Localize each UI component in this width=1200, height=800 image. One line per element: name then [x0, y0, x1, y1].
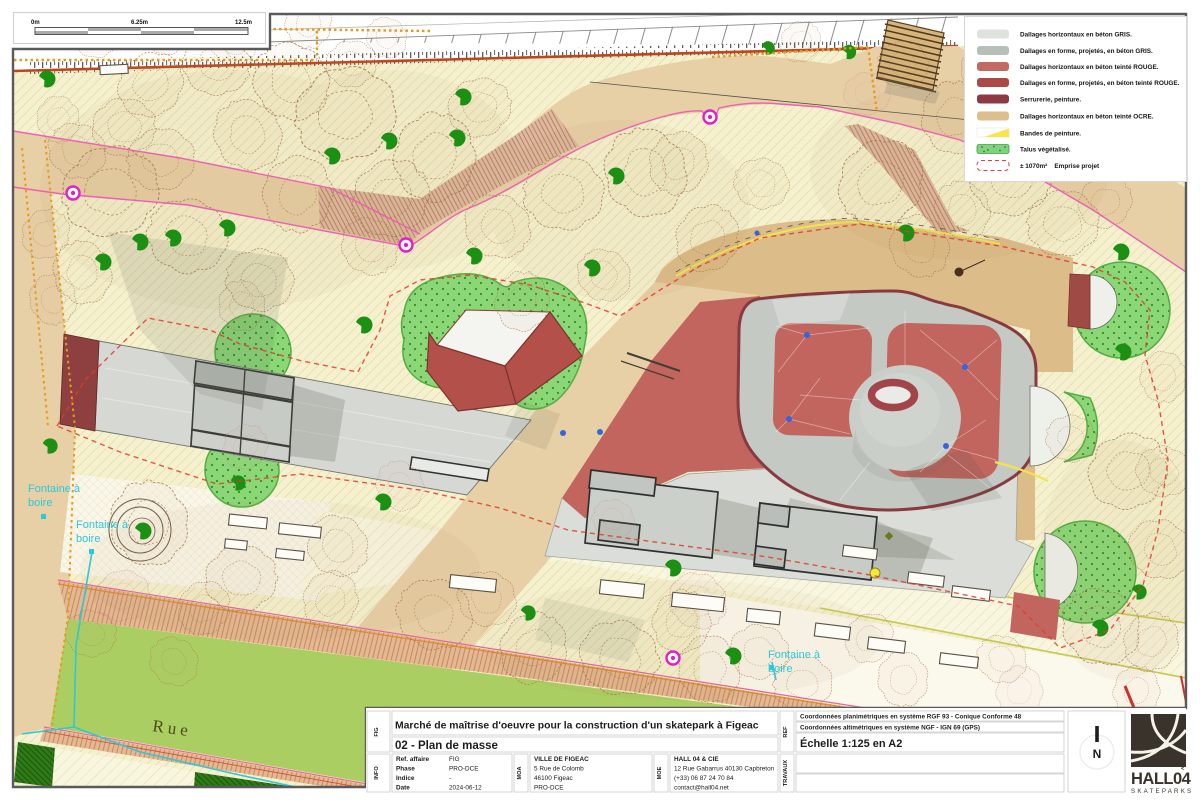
svg-text:HALL 04 & CIE: HALL 04 & CIE — [674, 756, 719, 763]
svg-text:boire: boire — [768, 663, 792, 675]
svg-text:46100 Figeac: 46100 Figeac — [534, 775, 574, 782]
svg-text:Dallages horizontaux en béton: Dallages horizontaux en béton teinté ROU… — [1020, 64, 1159, 71]
svg-text:Dallages en forme, projetés, e: Dallages en forme, projetés, en béton te… — [1020, 80, 1180, 87]
svg-text:MOA: MOA — [517, 766, 523, 779]
svg-text:TRAVAUX: TRAVAUX — [783, 760, 789, 786]
svg-text:6.25m: 6.25m — [131, 20, 148, 26]
svg-text:Phase: Phase — [396, 766, 415, 773]
svg-text:(+33) 06 87 24 70 84: (+33) 06 87 24 70 84 — [674, 775, 734, 782]
svg-text:Fontaine à: Fontaine à — [76, 519, 129, 531]
svg-text:Indice: Indice — [396, 775, 415, 782]
svg-text:± 1070m² Emprise projet: ± 1070m² Emprise projet — [1020, 163, 1100, 170]
svg-text:Ref. affaire: Ref. affaire — [396, 756, 429, 763]
svg-text:Marché de maîtrise d'oeuvre po: Marché de maîtrise d'oeuvre pour la cons… — [395, 721, 759, 732]
svg-text:Bandes de peinture.: Bandes de peinture. — [1020, 131, 1081, 138]
svg-text:02 - Plan de masse: 02 - Plan de masse — [395, 740, 498, 752]
svg-text:Échelle 1:125 en A2: Échelle 1:125 en A2 — [800, 737, 902, 750]
svg-text:FIG: FIG — [374, 727, 380, 736]
svg-text:VILLE DE FIGEAC: VILLE DE FIGEAC — [534, 756, 589, 763]
svg-text:Coordonnées altimétriques en s: Coordonnées altimétriques en système NGF… — [800, 725, 980, 732]
svg-text:Date: Date — [396, 785, 410, 792]
svg-text:boire: boire — [28, 497, 52, 509]
svg-text:Dallages en forme, projetés, e: Dallages en forme, projetés, en béton GR… — [1020, 48, 1153, 55]
svg-text:PRO-DCE: PRO-DCE — [534, 785, 563, 792]
svg-text:MOE: MOE — [657, 766, 663, 779]
svg-text:Fontaine à: Fontaine à — [768, 649, 821, 661]
svg-text:2024-06-12: 2024-06-12 — [449, 785, 482, 792]
svg-text:Fontaine à: Fontaine à — [28, 483, 81, 495]
svg-text:SKATEPARKS: SKATEPARKS — [1131, 788, 1193, 795]
svg-text:INFO: INFO — [374, 766, 380, 780]
svg-text:boire: boire — [76, 533, 100, 545]
svg-text:0m: 0m — [31, 20, 40, 26]
svg-text:Coordonnées planimétriques en: Coordonnées planimétriques en système RG… — [800, 714, 1022, 721]
svg-text:5 Rue de Colomb: 5 Rue de Colomb — [534, 766, 584, 773]
svg-text:-: - — [449, 775, 451, 782]
svg-text:Serrurerie, peinture.: Serrurerie, peinture. — [1020, 97, 1081, 104]
svg-text:Dallages horizontaux en béton: Dallages horizontaux en béton GRIS. — [1020, 32, 1132, 39]
svg-text:FIG: FIG — [449, 756, 460, 763]
svg-text:ACE: ACE — [1180, 760, 1185, 770]
svg-text:N: N — [1093, 747, 1102, 761]
svg-text:12.5m: 12.5m — [235, 20, 252, 26]
svg-text:Talus végétalisé.: Talus végétalisé. — [1020, 147, 1071, 154]
svg-text:12 Rue Gabarrus 40130 Capbreto: 12 Rue Gabarrus 40130 Capbreton — [674, 766, 775, 773]
svg-text:contact@hall04.net: contact@hall04.net — [674, 785, 729, 792]
svg-text:Dallages horizontaux en béton: Dallages horizontaux en béton teinté OCR… — [1020, 114, 1154, 121]
svg-text:REF: REF — [783, 726, 789, 738]
svg-text:HALL04: HALL04 — [1131, 770, 1192, 788]
svg-text:PRO-DCE: PRO-DCE — [449, 766, 478, 773]
